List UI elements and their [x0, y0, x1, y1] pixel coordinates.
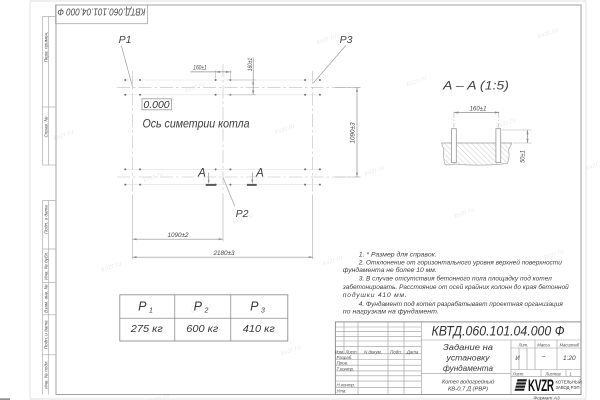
- svg-text:160±1: 160±1: [193, 65, 207, 72]
- svg-text:Перв. примен.: Перв. примен.: [44, 32, 49, 63]
- svg-text:Пров.: Пров.: [337, 361, 349, 366]
- svg-text:N докум.: N докум.: [364, 350, 382, 355]
- svg-text:1090±2: 1090±2: [168, 232, 189, 239]
- svg-text:KVZR: KVZR: [528, 376, 554, 394]
- svg-text:КВТД.060.101.04.000 Ф: КВТД.060.101.04.000 Ф: [58, 6, 146, 18]
- svg-text:Т.контр.: Т.контр.: [337, 366, 355, 371]
- svg-text:Подп. и дата: Подп. и дата: [44, 205, 49, 234]
- svg-text:kvzr.ru: kvzr.ru: [101, 260, 123, 274]
- svg-text:Разраб.: Разраб.: [337, 355, 353, 360]
- svg-text:Дата: Дата: [406, 350, 419, 355]
- svg-text:275 кг: 275 кг: [130, 323, 163, 335]
- svg-text:Подп.: Подп.: [390, 350, 402, 355]
- svg-text:установку: установку: [445, 354, 490, 363]
- svg-text:по нагрузкам на фундамент.: по нагрузкам на фундамент.: [343, 307, 439, 315]
- svg-text:Задание на: Задание на: [443, 343, 494, 352]
- svg-text:Инв. № дубл.: Инв. № дубл.: [44, 252, 49, 280]
- svg-text:kvzr.ru: kvzr.ru: [453, 206, 475, 220]
- svg-text:P3: P3: [340, 34, 353, 46]
- svg-text:P3: P3: [250, 300, 265, 315]
- svg-text:A: A: [197, 168, 206, 180]
- svg-text:kvzr.ru: kvzr.ru: [406, 75, 428, 89]
- svg-text:1090±3: 1090±3: [350, 122, 357, 143]
- svg-text:фундамента: фундамента: [443, 364, 494, 373]
- svg-text:P1: P1: [119, 34, 132, 46]
- svg-text:Подп. и дата: Подп. и дата: [44, 320, 49, 349]
- svg-text:kvzr.ru: kvzr.ru: [537, 27, 559, 41]
- svg-text:A – A (1:5): A – A (1:5): [442, 78, 509, 92]
- svg-text:Масштаб: Масштаб: [560, 342, 580, 347]
- svg-text:A: A: [255, 168, 264, 180]
- svg-text:2. Отклонение от горизонтально: 2. Отклонение от горизонтального уровня …: [358, 258, 562, 266]
- svg-text:фундамента не более 10 мм.: фундамента не более 10 мм.: [343, 266, 437, 274]
- svg-text:1:20: 1:20: [563, 355, 576, 362]
- svg-text:Инв. № подл.: Инв. № подл.: [44, 360, 49, 389]
- svg-text:P1: P1: [138, 300, 153, 315]
- svg-text:забетонировать. Расстояние от: забетонировать. Расстояние от осей крайн…: [342, 283, 569, 291]
- svg-text:И: И: [515, 356, 520, 362]
- svg-text:КВ-0,7 Д (РВР): КВ-0,7 Д (РВР): [448, 386, 488, 392]
- svg-text:4. Фундамент под котел разраба: 4. Фундамент под котел разрабатывает про…: [359, 300, 563, 308]
- svg-text:600 кг: 600 кг: [186, 323, 218, 335]
- svg-text:ЗАВОД РЭП: ЗАВОД РЭП: [556, 385, 580, 390]
- svg-text:Лист: Лист: [344, 350, 357, 355]
- svg-text:Взам. инв. №: Взам. инв. №: [44, 284, 49, 312]
- svg-text:kvzr.ru: kvzr.ru: [316, 33, 338, 47]
- svg-text:подушки 410 мм.: подушки 410 мм.: [343, 291, 407, 299]
- svg-text:kvzr.ru: kvzr.ru: [364, 164, 386, 178]
- svg-text:1: 1: [569, 372, 571, 377]
- svg-text:3. В случае отсутствия бетонно: 3. В случае отсутствия бетонного пола пл…: [359, 274, 552, 282]
- svg-text:kvzr.ru: kvzr.ru: [322, 254, 344, 268]
- svg-text:Лит.: Лит.: [517, 342, 528, 347]
- svg-text:kvzr.ru: kvzr.ru: [274, 123, 296, 137]
- svg-text:КВТД.060.101.04.000 Ф: КВТД.060.101.04.000 Ф: [432, 322, 565, 338]
- svg-text:P2: P2: [236, 208, 249, 220]
- svg-text:Формат А3: Формат А3: [533, 396, 560, 400]
- svg-text:160±1: 160±1: [470, 106, 487, 113]
- svg-text:0.000: 0.000: [143, 99, 169, 111]
- svg-text:50±1: 50±1: [519, 150, 526, 163]
- svg-text:Н.контр.: Н.контр.: [337, 382, 356, 387]
- svg-text:1. * Размер для справок.: 1. * Размер для справок.: [359, 251, 437, 259]
- svg-text:kvzr.ru: kvzr.ru: [280, 344, 302, 358]
- svg-text:Справ. №: Справ. №: [44, 117, 49, 138]
- svg-text:P2: P2: [194, 300, 209, 315]
- svg-text:Ось симетрии котла: Ось симетрии котла: [143, 119, 250, 131]
- svg-text:160±1: 160±1: [247, 58, 254, 72]
- svg-text:Масса: Масса: [537, 342, 550, 347]
- svg-text:Утв.: Утв.: [337, 388, 347, 393]
- svg-text:Котел водогрейный: Котел водогрейный: [442, 378, 494, 385]
- svg-text:Изм.: Изм.: [335, 350, 344, 355]
- svg-text:Лист: Лист: [512, 372, 524, 377]
- svg-text:–: –: [541, 355, 546, 361]
- svg-text:410 кг: 410 кг: [243, 323, 275, 335]
- svg-text:kvzr.ru: kvzr.ru: [585, 158, 600, 172]
- svg-text:2180±3: 2180±3: [212, 250, 234, 257]
